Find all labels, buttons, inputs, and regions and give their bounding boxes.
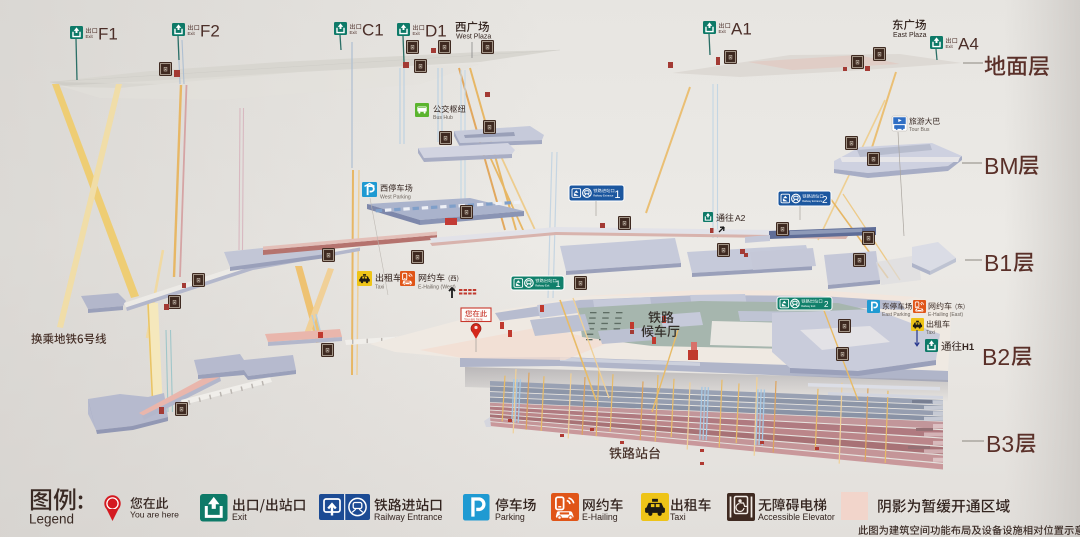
- svg-text:1: 1: [614, 189, 620, 201]
- svg-text:Taxi: Taxi: [926, 330, 935, 336]
- svg-text:B3: B3: [986, 431, 1014, 457]
- svg-text:F2: F2: [200, 21, 220, 40]
- svg-text:West Plaza: West Plaza: [456, 34, 491, 41]
- svg-text:1: 1: [555, 279, 560, 289]
- svg-text:2: 2: [822, 195, 828, 206]
- svg-text:Tour Bus: Tour Bus: [909, 127, 930, 133]
- svg-text:E-Hailing: E-Hailing: [582, 512, 618, 522]
- svg-text:E-Hailing (East): E-Hailing (East): [928, 312, 963, 318]
- svg-text:Taxi: Taxi: [375, 285, 384, 291]
- svg-text:Exit: Exit: [86, 34, 94, 39]
- svg-text:A2: A2: [735, 213, 746, 223]
- svg-text:C1: C1: [362, 20, 384, 39]
- svg-text:H1: H1: [962, 342, 975, 353]
- svg-text:Exit: Exit: [188, 31, 196, 36]
- svg-text:2: 2: [824, 300, 829, 309]
- svg-text:East Parking: East Parking: [882, 312, 911, 318]
- svg-text:B2: B2: [982, 344, 1010, 370]
- svg-text:Exit: Exit: [719, 29, 727, 34]
- svg-text:East Plaza: East Plaza: [893, 32, 927, 39]
- svg-text:Railway Exit: Railway Exit: [801, 304, 815, 308]
- svg-text:F1: F1: [98, 24, 118, 43]
- svg-text:Bus Hub: Bus Hub: [433, 115, 453, 121]
- svg-text:Accessible Elevator: Accessible Elevator: [758, 512, 835, 522]
- svg-text:Legend: Legend: [29, 512, 74, 527]
- svg-text:Railway Entrance: Railway Entrance: [374, 512, 443, 522]
- svg-text:Exit: Exit: [232, 512, 247, 522]
- svg-text:Railway Entrance: Railway Entrance: [593, 193, 614, 197]
- svg-text:B1: B1: [984, 250, 1012, 276]
- svg-text:A4: A4: [958, 34, 979, 53]
- svg-text:D1: D1: [425, 21, 447, 40]
- svg-text:Exit: Exit: [413, 31, 421, 36]
- svg-text:A1: A1: [731, 19, 752, 38]
- svg-text:BM: BM: [984, 153, 1019, 179]
- svg-text:Railway Entrance: Railway Entrance: [802, 199, 823, 203]
- svg-text:Exit: Exit: [946, 44, 954, 49]
- svg-text:Exit: Exit: [350, 30, 358, 35]
- svg-text:Parking: Parking: [495, 512, 525, 522]
- svg-text:Railway Exit: Railway Exit: [535, 283, 549, 287]
- svg-text:West Parking: West Parking: [380, 195, 411, 201]
- svg-text:You are here: You are here: [464, 317, 483, 321]
- svg-text:Taxi: Taxi: [670, 512, 686, 522]
- svg-text:You are here: You are here: [130, 510, 179, 520]
